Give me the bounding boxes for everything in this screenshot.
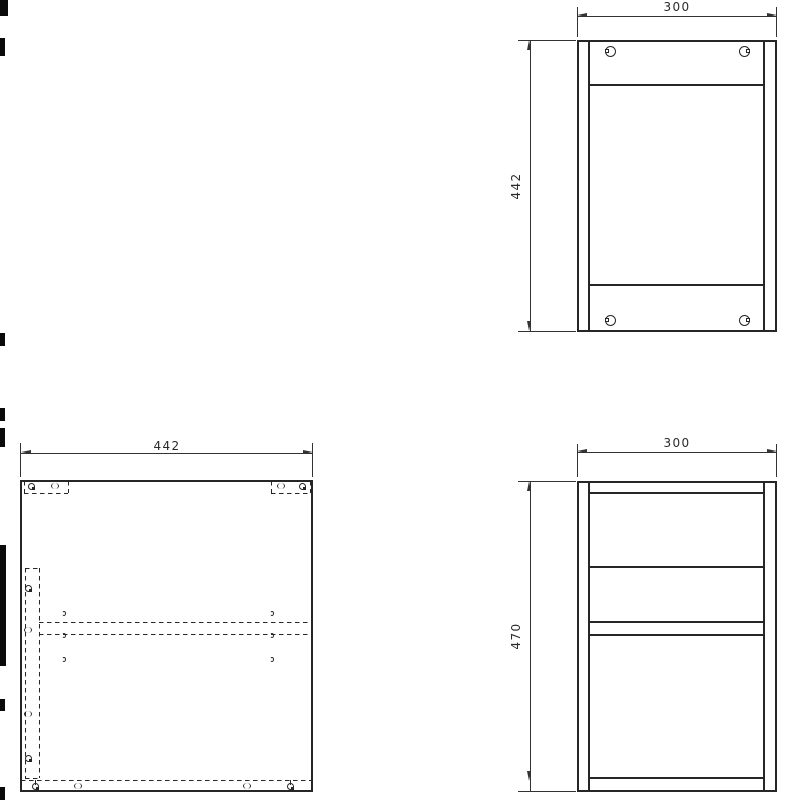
dimension-label: 442 bbox=[21, 440, 313, 453]
hidden-rail-dashed bbox=[25, 568, 39, 569]
view-plan-panel: 442 bbox=[0, 0, 800, 800]
cam-lock-icon bbox=[287, 783, 294, 790]
pilot-hole-icon bbox=[62, 633, 66, 638]
fitting-outline-dashed bbox=[24, 493, 68, 494]
hidden-shelf-dashed bbox=[39, 622, 311, 623]
dowel-hole-icon bbox=[24, 711, 32, 717]
dowel-hole-icon bbox=[277, 483, 285, 489]
pilot-hole-icon bbox=[62, 611, 66, 616]
hidden-shelf-dashed bbox=[311, 622, 312, 636]
fitting-outline-dashed bbox=[310, 481, 311, 493]
pilot-hole-icon bbox=[62, 657, 66, 662]
pilot-hole-icon bbox=[270, 633, 274, 638]
pilot-hole-icon bbox=[270, 657, 274, 662]
fitting-outline-dashed bbox=[24, 481, 25, 493]
fitting-outline-dashed bbox=[271, 493, 311, 494]
technical-drawing-canvas: 300 442 300 470 bbox=[0, 0, 800, 800]
cam-lock-icon bbox=[25, 755, 32, 762]
hidden-rail-dashed bbox=[25, 778, 39, 779]
hidden-rail-dashed bbox=[39, 568, 40, 778]
hidden-rail-dashed bbox=[25, 568, 26, 778]
cam-lock-icon bbox=[32, 783, 39, 790]
fitting-outline-dashed bbox=[68, 481, 69, 493]
pilot-hole-icon bbox=[270, 611, 274, 616]
dowel-hole-icon bbox=[24, 627, 32, 633]
cam-lock-icon bbox=[299, 483, 306, 490]
hidden-edge-dashed bbox=[21, 780, 312, 781]
cam-lock-icon bbox=[25, 585, 32, 592]
dowel-hole-icon bbox=[243, 783, 251, 789]
cam-lock-icon bbox=[28, 483, 35, 490]
dowel-hole-icon bbox=[74, 783, 82, 789]
fitting-outline-dashed bbox=[271, 481, 272, 493]
dowel-hole-icon bbox=[51, 483, 59, 489]
